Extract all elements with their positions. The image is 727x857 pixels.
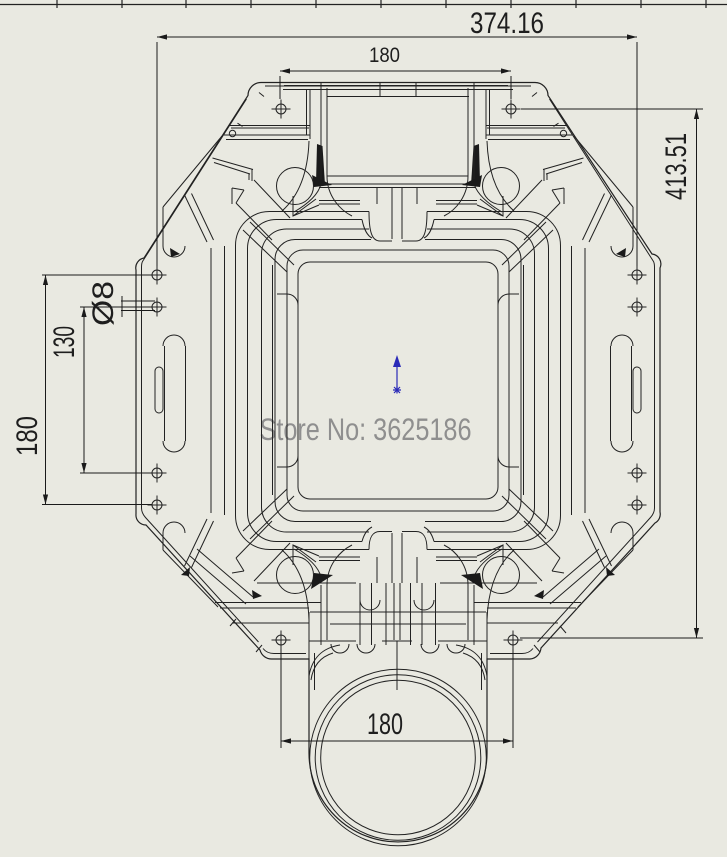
svg-text:413.51: 413.51 xyxy=(660,133,693,200)
svg-text:180: 180 xyxy=(369,44,400,67)
svg-text:Store No: 3625186: Store No: 3625186 xyxy=(260,411,472,447)
svg-text:Ø8: Ø8 xyxy=(87,281,120,326)
svg-text:130: 130 xyxy=(48,326,81,358)
svg-text:374.16: 374.16 xyxy=(470,7,544,40)
svg-text:180: 180 xyxy=(11,416,44,456)
svg-text:180: 180 xyxy=(367,708,403,741)
